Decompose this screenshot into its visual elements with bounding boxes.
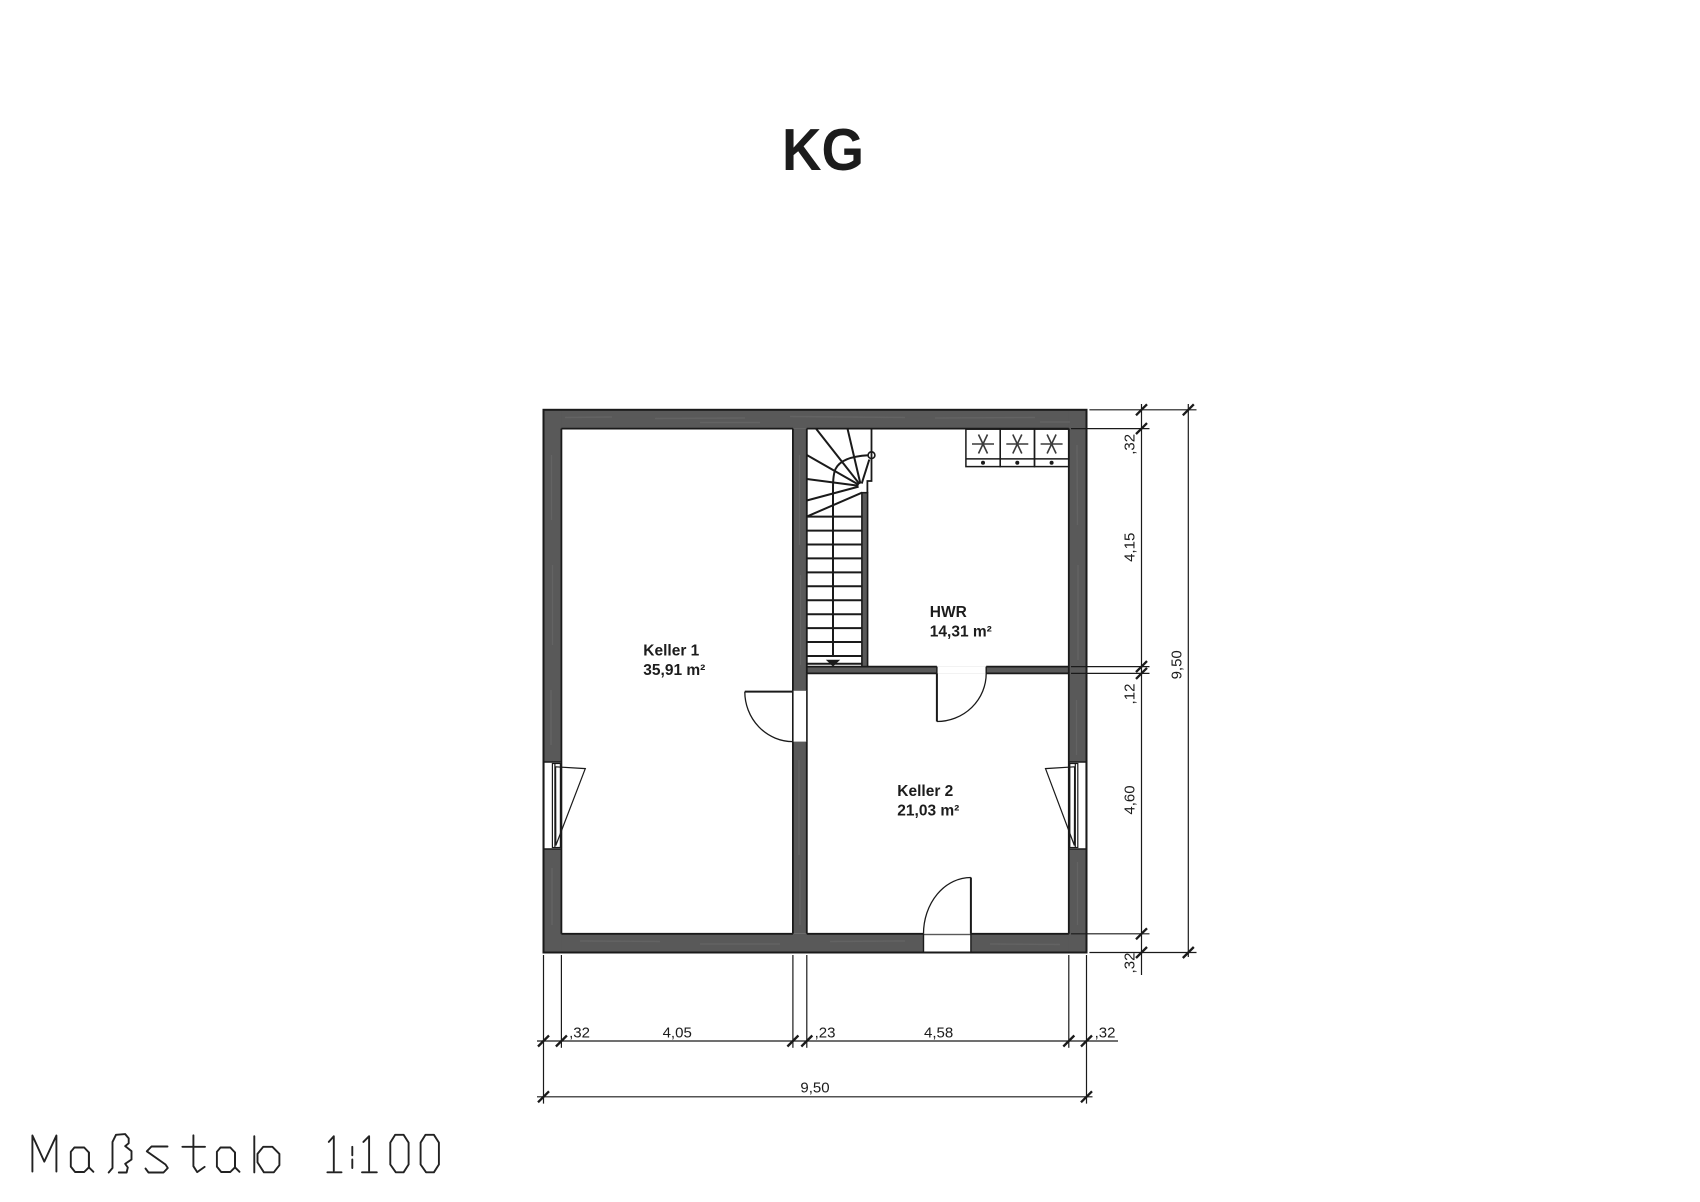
svg-text:4,60: 4,60 <box>1122 785 1139 814</box>
svg-text:,32: ,32 <box>569 1025 590 1042</box>
svg-text:,23: ,23 <box>815 1025 836 1042</box>
svg-text:9,50: 9,50 <box>1169 650 1186 679</box>
svg-text:HWR: HWR <box>930 604 967 621</box>
svg-text:KG: KG <box>782 117 864 183</box>
svg-text:9,50: 9,50 <box>800 1080 829 1097</box>
svg-text:Keller 2: Keller 2 <box>897 783 953 800</box>
svg-text:,32: ,32 <box>1122 434 1139 455</box>
svg-text:,32: ,32 <box>1122 953 1139 974</box>
svg-text:35,91 m²: 35,91 m² <box>643 662 705 679</box>
svg-text:4,05: 4,05 <box>663 1025 692 1042</box>
svg-text:,12: ,12 <box>1122 684 1139 705</box>
svg-text:14,31 m²: 14,31 m² <box>930 624 992 641</box>
svg-text:Keller 1: Keller 1 <box>643 642 699 659</box>
svg-text:,32: ,32 <box>1095 1025 1116 1042</box>
svg-text:4,15: 4,15 <box>1122 533 1139 562</box>
svg-text:4,58: 4,58 <box>924 1025 953 1042</box>
svg-text:21,03 m²: 21,03 m² <box>897 803 959 820</box>
